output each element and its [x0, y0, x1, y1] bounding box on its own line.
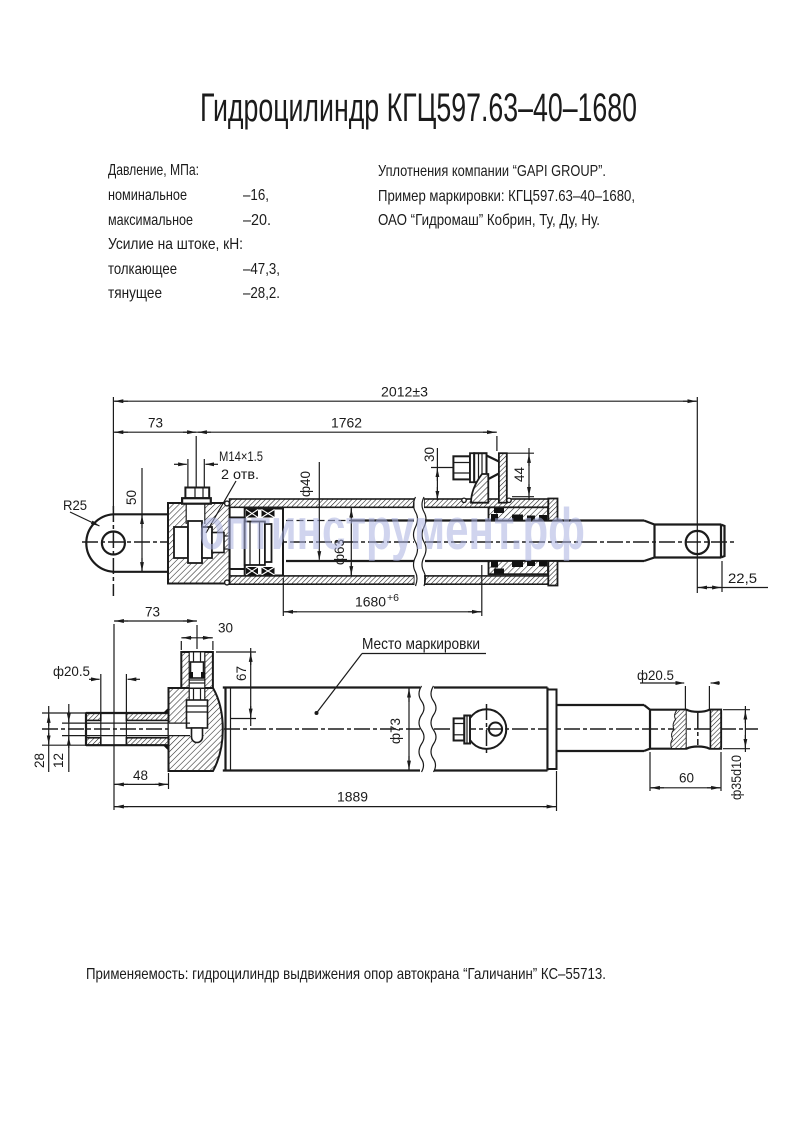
svg-text:–20.: –20. [243, 212, 271, 229]
svg-text:Пример маркировки: КГЦ597.63–4: Пример маркировки: КГЦ597.63–40–1680, [378, 188, 635, 205]
svg-text:толкающее: толкающее [108, 261, 177, 278]
svg-text:–47,3,: –47,3, [243, 261, 280, 278]
svg-text:73: 73 [148, 415, 163, 431]
svg-text:30: 30 [421, 447, 437, 462]
svg-text:Место маркировки: Место маркировки [362, 636, 480, 653]
svg-text:–28,2.: –28,2. [243, 285, 280, 302]
svg-text:Применяемость: гидроцилиндр вы: Применяемость: гидроцилиндр выдвижения о… [86, 966, 606, 983]
svg-text:2012±3: 2012±3 [381, 384, 428, 400]
svg-text:тянущее: тянущее [108, 285, 162, 302]
svg-text:M14×1.5: M14×1.5 [219, 448, 263, 464]
svg-text:ф20.5: ф20.5 [53, 663, 90, 679]
svg-text:максимальное: максимальное [108, 212, 193, 229]
svg-text:ф35d10: ф35d10 [728, 755, 744, 800]
svg-text:оптинструмент.рф: оптинструмент.рф [199, 497, 585, 562]
svg-text:Давление, МПа:: Давление, МПа: [108, 162, 199, 179]
svg-text:30: 30 [218, 620, 233, 636]
svg-text:28: 28 [31, 753, 47, 768]
svg-text:Уплотнения компании “GAPI GROU: Уплотнения компании “GAPI GROUP”. [378, 163, 606, 180]
svg-text:номинальное: номинальное [108, 187, 187, 204]
svg-text:ф20.5: ф20.5 [637, 667, 674, 683]
svg-text:1762: 1762 [331, 415, 362, 431]
svg-text:+6: +6 [387, 592, 399, 604]
svg-text:60: 60 [679, 770, 694, 786]
svg-text:22,5: 22,5 [728, 570, 757, 586]
svg-text:2 отв.: 2 отв. [221, 466, 259, 482]
svg-text:67: 67 [233, 666, 249, 681]
svg-text:44: 44 [511, 467, 527, 482]
svg-text:ОАО “Гидромаш” Кобрин, Ту, Ду,: ОАО “Гидромаш” Кобрин, Ту, Ду, Ну. [378, 212, 600, 229]
svg-text:1680: 1680 [355, 594, 386, 610]
svg-text:50: 50 [123, 490, 139, 505]
svg-text:Гидроцилиндр КГЦ597.63–40–1680: Гидроцилиндр КГЦ597.63–40–1680 [200, 86, 637, 130]
svg-text:12: 12 [50, 753, 66, 768]
svg-text:1889: 1889 [337, 789, 368, 805]
svg-text:R25: R25 [63, 497, 87, 513]
svg-text:–16,: –16, [243, 187, 269, 204]
svg-text:48: 48 [133, 767, 148, 783]
svg-text:73: 73 [145, 604, 160, 620]
svg-text:ф73: ф73 [387, 718, 403, 744]
svg-text:Усилие на штоке, кН:: Усилие на штоке, кН: [108, 236, 243, 253]
svg-text:ф40: ф40 [297, 471, 313, 497]
